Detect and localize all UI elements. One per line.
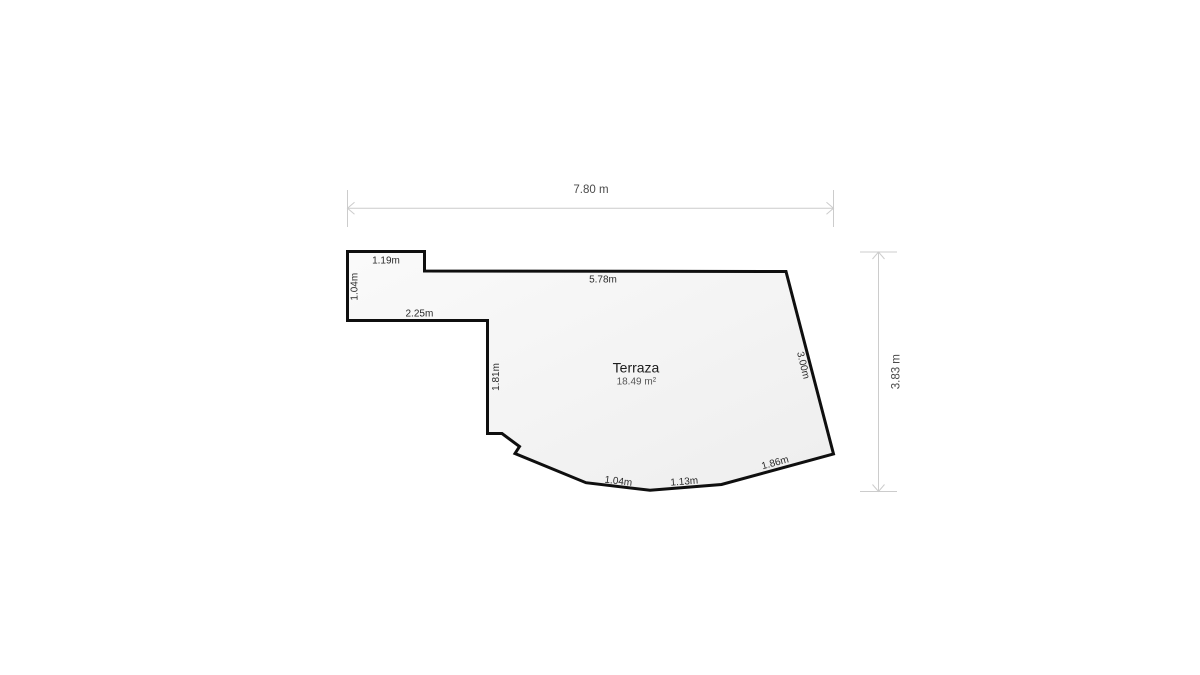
svg-text:18.49 m²: 18.49 m² [617, 377, 657, 388]
svg-text:5.78m: 5.78m [589, 274, 617, 285]
svg-text:1.19m: 1.19m [372, 256, 400, 267]
svg-text:1.13m: 1.13m [670, 476, 699, 489]
svg-text:3.83 m: 3.83 m [891, 354, 903, 389]
svg-text:1.04m: 1.04m [349, 273, 360, 301]
svg-text:Terraza: Terraza [613, 359, 660, 375]
svg-text:7.80 m: 7.80 m [573, 184, 608, 196]
svg-text:2.25m: 2.25m [406, 308, 434, 319]
svg-text:1.81m: 1.81m [491, 363, 502, 391]
